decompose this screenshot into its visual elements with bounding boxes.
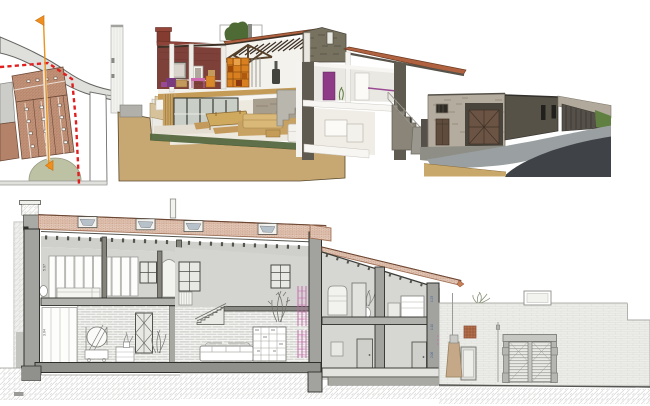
svg-text:1.23: 1.23 [430, 296, 434, 302]
svg-text:3.04: 3.04 [43, 329, 47, 336]
svg-text:1.10: 1.10 [430, 324, 434, 330]
svg-text:2.06: 2.06 [430, 352, 434, 358]
svg-text:5.97: 5.97 [43, 264, 47, 271]
